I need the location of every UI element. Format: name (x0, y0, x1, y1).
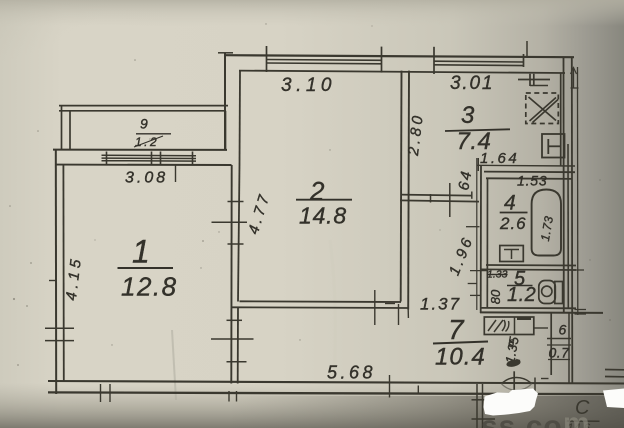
svg-text:4: 4 (504, 192, 516, 215)
svg-text:10.4: 10.4 (435, 344, 486, 371)
svg-text:7: 7 (448, 314, 465, 345)
svg-text:1.64: 1.64 (480, 150, 519, 167)
svg-text:1: 1 (132, 234, 150, 270)
svg-text:64: 64 (455, 168, 475, 191)
svg-text:1.2: 1.2 (507, 284, 536, 306)
svg-text:2.6: 2.6 (499, 214, 527, 233)
svg-text:6: 6 (508, 338, 515, 350)
svg-text:12.8: 12.8 (121, 272, 178, 302)
svg-text:5.68: 5.68 (327, 363, 376, 383)
svg-text:0.7: 0.7 (549, 345, 571, 361)
svg-text:m: m (563, 407, 590, 428)
svg-text:3.10: 3.10 (281, 75, 336, 96)
svg-text:1.37: 1.37 (420, 295, 461, 314)
svg-text:9: 9 (140, 116, 148, 132)
svg-text:1.53: 1.53 (517, 173, 547, 189)
svg-text:3: 3 (461, 102, 475, 129)
svg-text:6: 6 (559, 322, 567, 338)
svg-text:3.01: 3.01 (450, 73, 494, 94)
svg-text:14.8: 14.8 (299, 203, 347, 229)
svg-text:1.33: 1.33 (487, 269, 508, 281)
svg-text:80: 80 (488, 289, 503, 304)
svg-text:3.08: 3.08 (125, 170, 168, 187)
svg-text:2: 2 (309, 176, 325, 206)
